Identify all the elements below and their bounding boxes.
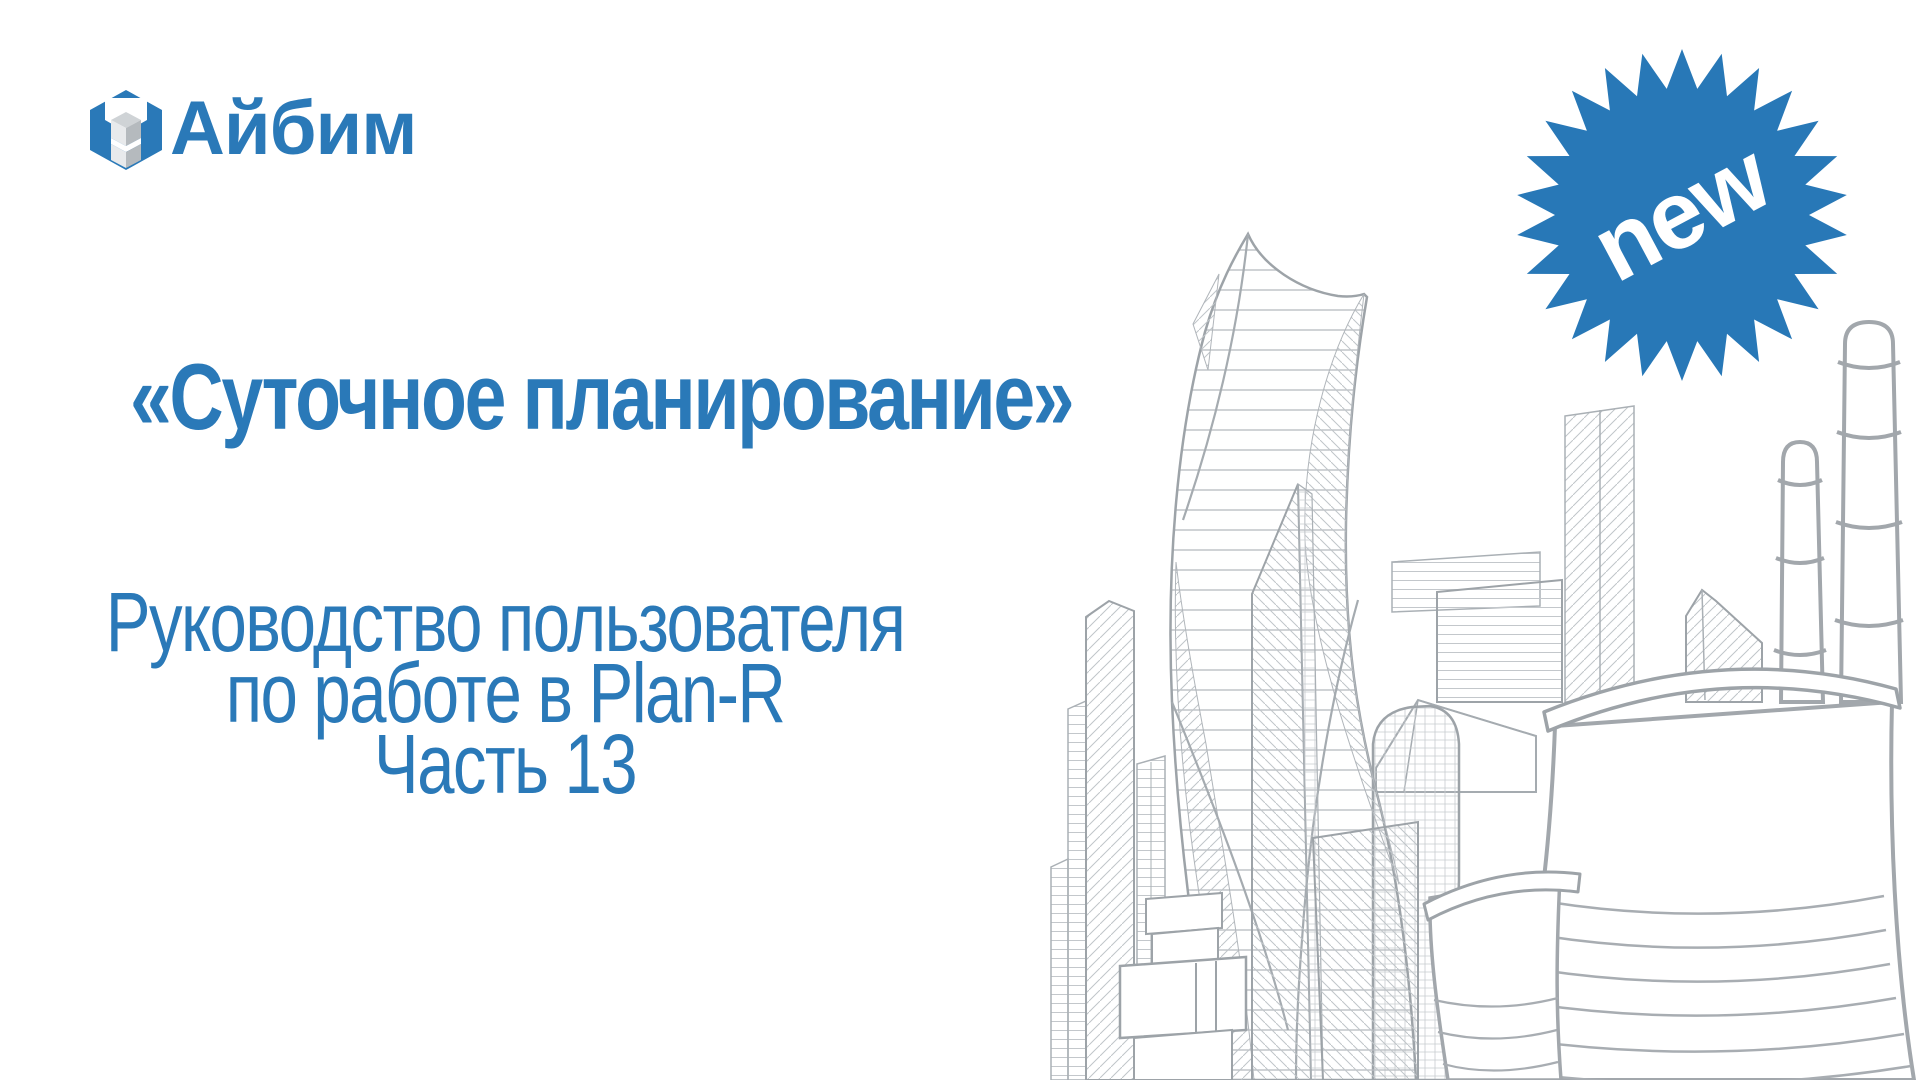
cooling-tower-small (1424, 872, 1580, 1080)
aibim-logo-icon (88, 88, 164, 172)
new-badge: new (1512, 45, 1852, 385)
document-title: «Суточное планирование» (130, 350, 1072, 444)
slide-canvas: new Айбим «Суточное планирование» Руково… (0, 0, 1920, 1080)
smokestack-short (1774, 442, 1826, 702)
hatched-slab-towers (1392, 406, 1762, 702)
brand-name: Айбим (170, 91, 417, 167)
document-subtitle: Руководство пользователя по работе в Pla… (105, 587, 905, 800)
